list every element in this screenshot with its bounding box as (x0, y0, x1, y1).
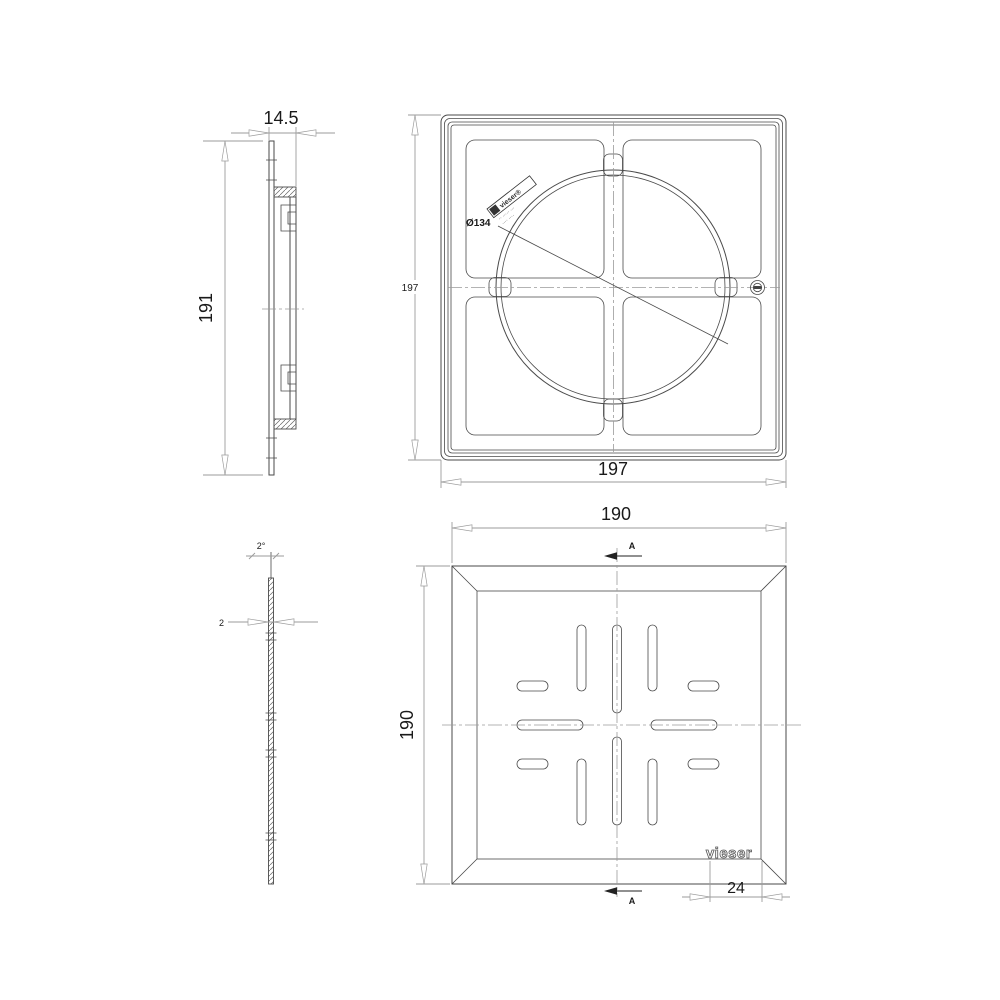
dim-arrow (452, 525, 472, 531)
dim-arrow (441, 479, 461, 485)
drain-opening-circle (496, 170, 730, 404)
dim-arrow (222, 455, 228, 475)
dim-arrow (421, 566, 427, 586)
maker-stamp: vieser® ·· ····· ··· ···· ···· (487, 176, 545, 229)
dim-arrow (296, 130, 316, 136)
section-label-bottom: A (629, 896, 636, 906)
dimension-width-frame-front: 197 (441, 459, 786, 488)
dim-arrow (766, 479, 786, 485)
dim-label-197-bottom: 197 (598, 459, 628, 479)
drawing-sheet: 14.5 191 (0, 0, 1000, 1000)
dim-label-thickness: 2 (219, 618, 224, 628)
section-arrow (604, 552, 617, 560)
section-marker-bottom: A (604, 887, 642, 906)
dim-label-24: 24 (727, 880, 745, 897)
section-marker-top: A (604, 541, 642, 560)
frame-front-view: Ø134 vieser® ·· ····· ··· ···· ···· 197 … (396, 115, 786, 488)
dim-arrow (762, 894, 782, 900)
dim-arrow (412, 440, 418, 460)
dim-arrow (766, 525, 786, 531)
section-arrow (604, 887, 617, 895)
dim-label-angle: 2° (257, 541, 266, 551)
dim-arrow (421, 864, 427, 884)
vieser-logo: vieser (706, 845, 752, 862)
dim-arrow (249, 130, 269, 136)
dim-arrow (274, 619, 294, 625)
grate-plate-section (266, 552, 277, 884)
dim-arrow (412, 115, 418, 135)
frame-side-view: 14.5 191 (196, 108, 335, 475)
technical-drawing-canvas: 14.5 191 (0, 0, 1000, 1000)
frame-profile-outline (262, 141, 304, 475)
dimension-width-grate: 190 (452, 504, 786, 563)
dimension-height-frame-side: 191 (196, 141, 263, 475)
dim-arrow (248, 619, 268, 625)
section-label-top: A (629, 541, 636, 551)
dim-label-197-left: 197 (402, 283, 419, 294)
dimension-height-frame-front: 197 (396, 115, 441, 460)
dimension-diameter: Ø134 (466, 218, 728, 344)
grate-side-view: 2° 2 (219, 541, 318, 884)
dim-label-14-5: 14.5 (263, 108, 298, 128)
dimension-logo-width: 24 (682, 861, 790, 902)
dim-label-191: 191 (196, 293, 216, 323)
dim-arrow (222, 141, 228, 161)
dimension-draft-angle: 2° (246, 541, 284, 559)
dimension-width-frame-side: 14.5 (231, 108, 335, 186)
dim-label-190-top: 190 (601, 504, 631, 524)
dim-arrow (690, 894, 710, 900)
dim-label-190-left: 190 (397, 710, 417, 740)
grate-front-view: A A vieser 190 190 (397, 504, 803, 906)
dim-label-diameter: Ø134 (466, 218, 491, 229)
